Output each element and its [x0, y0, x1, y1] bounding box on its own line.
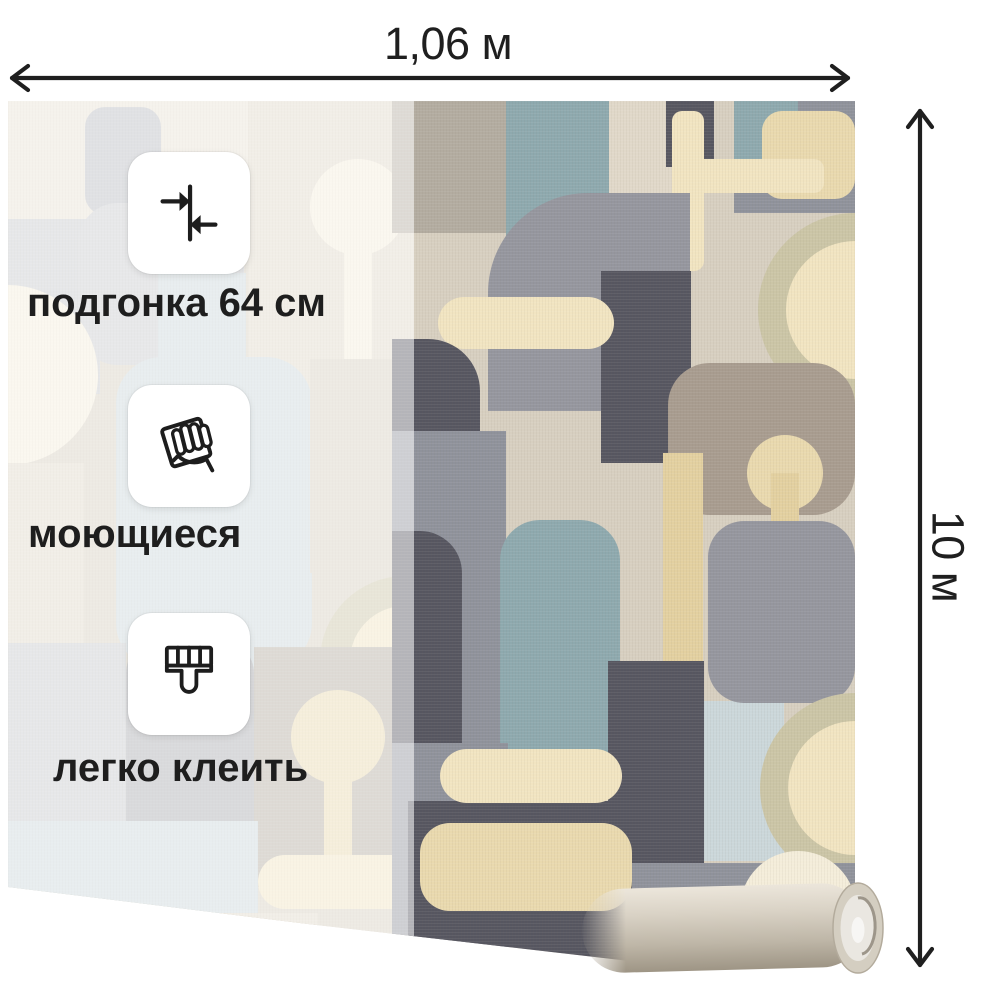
- pattern-match-icon: [151, 175, 227, 251]
- height-arrow: [902, 102, 938, 974]
- easy-glue-icon: [151, 636, 227, 712]
- feature-label-pattern-match: подгонка 64 см: [27, 281, 326, 325]
- feature-label-easy-glue: легко клеить: [53, 746, 308, 790]
- washable-badge: [128, 385, 250, 507]
- easy-glue-badge: [128, 613, 250, 735]
- roll-end-spiral: [830, 876, 888, 978]
- product-visual: 1,06 м 10 м: [0, 0, 1000, 1000]
- pattern-match-badge: [128, 152, 250, 274]
- washable-icon: [150, 407, 228, 485]
- roll-body: [581, 882, 865, 973]
- feature-label-washable: моющиеся: [28, 512, 241, 556]
- wallpaper-roll: [580, 876, 888, 978]
- width-arrow: [4, 60, 856, 96]
